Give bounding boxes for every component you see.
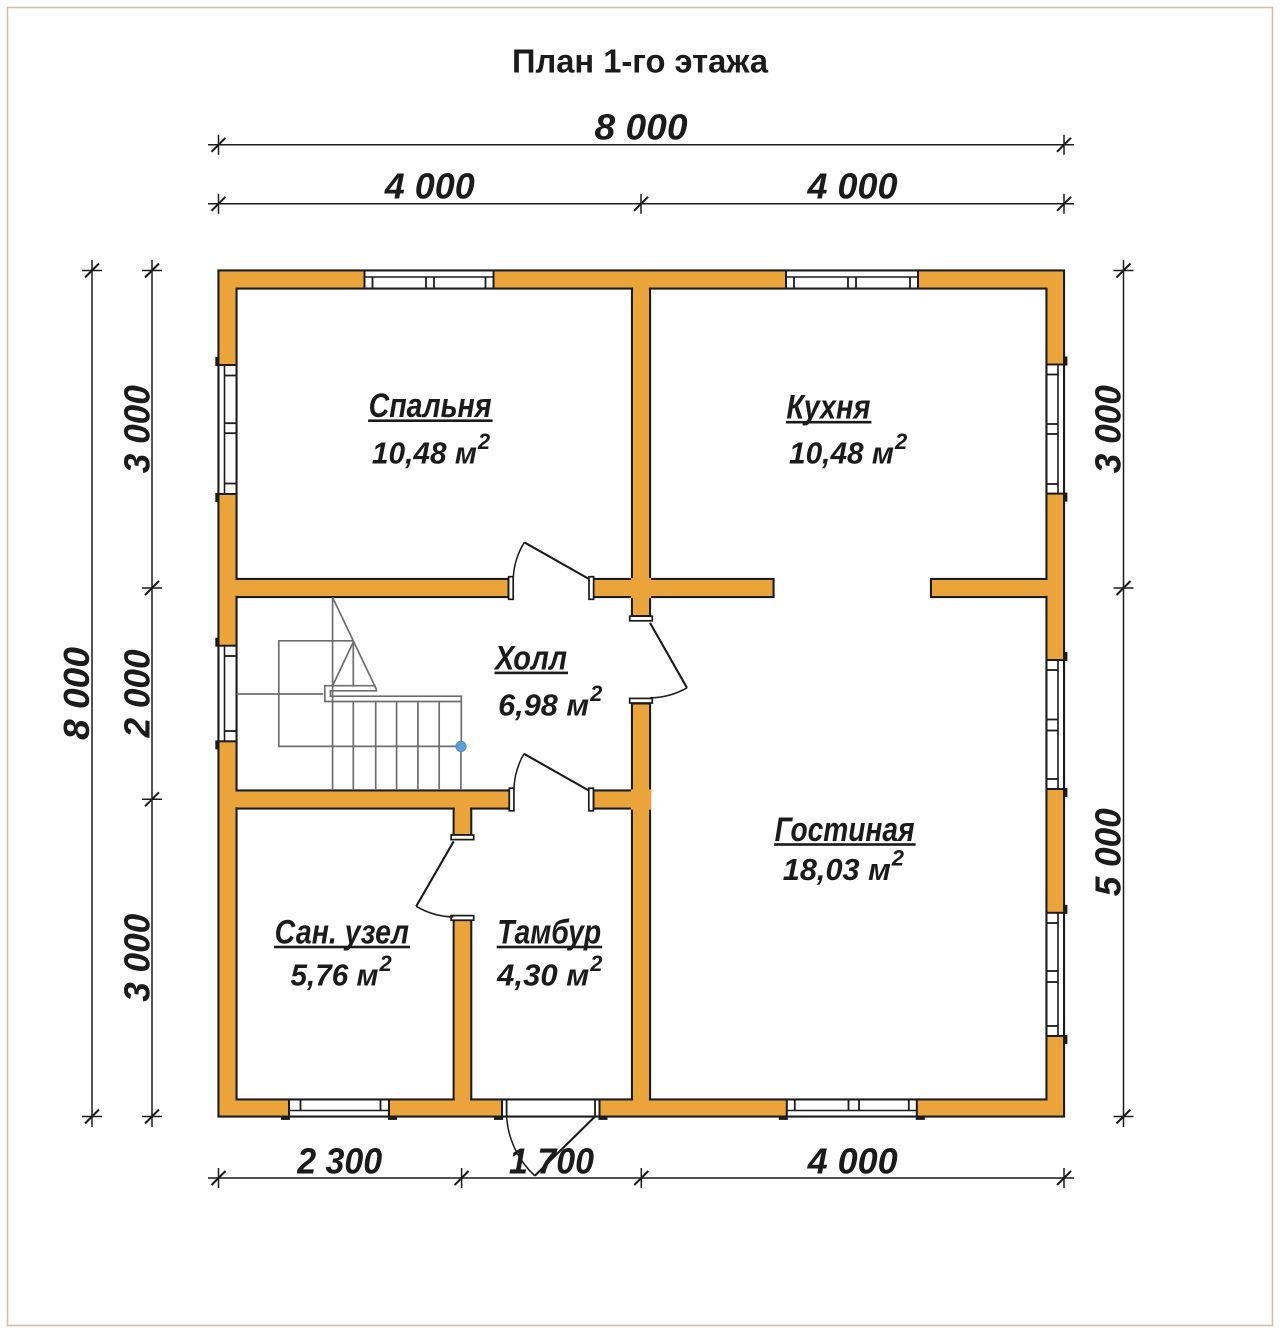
svg-text:10,48 м: 10,48 м — [372, 436, 477, 471]
svg-text:6,98 м: 6,98 м — [498, 688, 589, 723]
svg-text:4 000: 4 000 — [807, 1141, 898, 1182]
svg-text:3 000: 3 000 — [117, 385, 158, 473]
svg-text:2: 2 — [891, 846, 905, 871]
svg-text:8 000: 8 000 — [595, 107, 688, 148]
svg-text:3 000: 3 000 — [117, 914, 158, 1002]
svg-text:10,48 м: 10,48 м — [789, 436, 894, 471]
svg-text:2: 2 — [379, 951, 393, 976]
svg-text:2: 2 — [477, 429, 491, 454]
svg-text:4 000: 4 000 — [807, 166, 898, 207]
svg-text:2: 2 — [894, 429, 908, 454]
svg-text:3 000: 3 000 — [1088, 385, 1129, 473]
svg-text:2 000: 2 000 — [117, 650, 158, 739]
svg-text:4 000: 4 000 — [384, 166, 475, 207]
svg-text:2: 2 — [589, 951, 603, 976]
svg-text:5 000: 5 000 — [1088, 808, 1129, 896]
svg-text:2: 2 — [589, 681, 603, 706]
svg-text:8 000: 8 000 — [56, 647, 97, 740]
svg-text:4,30 м: 4,30 м — [496, 958, 589, 993]
svg-text:5,76 м: 5,76 м — [291, 958, 379, 993]
svg-text:2 300: 2 300 — [296, 1141, 382, 1182]
svg-text:1 700: 1 700 — [509, 1141, 594, 1182]
svg-text:18,03 м: 18,03 м — [783, 852, 891, 887]
svg-text:План 1-го этажа: План 1-го этажа — [512, 43, 769, 80]
